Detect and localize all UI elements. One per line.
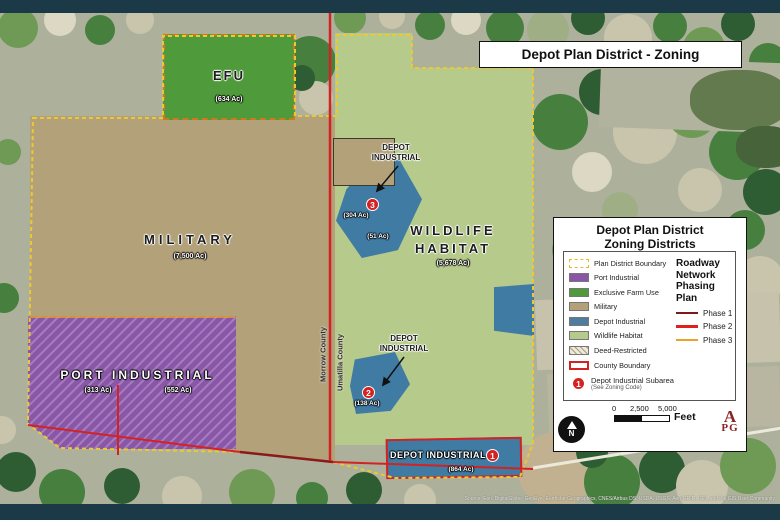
crop-circle — [678, 168, 722, 212]
callout-label-depot-industrial-2: DEPOT INDUSTRIAL — [368, 334, 440, 353]
phase2-label: Phase 2 — [703, 322, 732, 331]
plan-district-boundary-swatch — [569, 259, 589, 268]
crop-circle — [532, 94, 588, 150]
legend-item-deed-restricted: Deed-Restricted — [569, 345, 735, 357]
legend-panel: Depot Plan District Zoning Districts Pla… — [553, 217, 747, 452]
callout-label-depot-industrial-3: DEPOT INDUSTRIAL — [360, 143, 432, 162]
legend-item-phase-2: Phase 2 — [676, 322, 734, 331]
crop-circle — [415, 10, 445, 40]
wildlife-habitat-swatch — [569, 331, 589, 340]
subarea-marker-1: 1 — [486, 449, 499, 462]
scale-bar-graphic — [614, 415, 670, 422]
zone-depot-industrial-east — [494, 284, 534, 336]
zoning-map: EFU (634 Ac) MILITARY (7,500 Ac) WILDLIF… — [0, 0, 780, 520]
zone-acreage-efu: (634 Ac) — [163, 96, 295, 103]
crop-circle — [572, 152, 612, 192]
crop-circle — [0, 283, 19, 313]
legend-item-label: Wildlife Habitat — [594, 331, 643, 340]
depot-industrial-swatch — [569, 317, 589, 326]
bottom-frame-bar — [0, 504, 780, 520]
legend-title-line1: Depot Plan District — [554, 223, 746, 237]
legend-item-label: Port Industrial — [594, 273, 639, 282]
legend-item-depot-industrial-subarea: 1 Depot Industrial Subarea (See Zoning C… — [569, 376, 735, 391]
scale-tick-0: 0 — [612, 404, 616, 413]
zone-acreage-port-industrial-east: (552 Ac) — [148, 387, 208, 394]
legend-item-label: Plan District Boundary — [594, 259, 666, 268]
legend-item-phase-3: Phase 3 — [676, 336, 734, 345]
county-boundary-swatch — [569, 361, 589, 370]
legend-item-label: County Boundary — [594, 361, 650, 370]
north-arrow-icon: N — [558, 416, 585, 443]
zone-acreage-depot-industrial-2: (138 Ac) — [344, 400, 390, 407]
crop-circle — [346, 472, 382, 508]
zone-acreage-depot-industrial-3: (304 Ac) — [334, 212, 378, 219]
crop-circle — [0, 8, 38, 48]
legend-item-label: Depot Industrial — [594, 317, 645, 326]
scale-bar: 0 2,500 5,000 Feet — [606, 404, 736, 430]
zone-acreage-port-industrial-west: (313 Ac) — [68, 387, 128, 394]
crop-circle — [0, 139, 21, 165]
zone-label-efu: EFU — [163, 68, 295, 83]
legend-item-label: Exclusive Farm Use — [594, 288, 659, 297]
county-label-umatilla: Umatilla County — [336, 323, 345, 403]
zone-acreage-wildlife-habitat: (5,678 Ac) — [395, 260, 511, 267]
deed-restricted-swatch — [569, 346, 589, 355]
legend-item-label: Military — [594, 302, 617, 311]
zone-label-port-industrial: PORT INDUSTRIAL — [40, 368, 235, 382]
crop-circle — [0, 416, 16, 444]
subarea-marker-3: 3 — [366, 198, 379, 211]
phase3-line-swatch — [676, 339, 698, 342]
phase1-label: Phase 1 — [703, 309, 732, 318]
zone-acreage-depot-industrial-1: (864 Ac) — [438, 466, 484, 473]
zone-port-industrial — [28, 316, 236, 449]
apg-logo: A PG — [718, 410, 742, 434]
zone-acreage-military: (7,500 Ac) — [90, 253, 290, 260]
zone-acreage-depot-industrial-3b: (51 Ac) — [356, 233, 400, 240]
apg-logo-pg: PG — [718, 424, 742, 433]
legend-item-county-boundary: County Boundary — [569, 359, 735, 371]
top-frame-bar — [0, 0, 780, 13]
riparian-greenery — [690, 70, 780, 130]
crop-circle — [85, 15, 115, 45]
zone-label-military: MILITARY — [90, 232, 290, 247]
map-title: Depot Plan District - Zoning — [522, 47, 700, 62]
scale-bar-black-segment — [615, 416, 642, 421]
crop-circle — [743, 169, 780, 215]
north-arrow-triangle — [567, 421, 577, 429]
subarea-note-text: Depot Industrial Subarea (See Zoning Cod… — [591, 376, 674, 391]
subarea-marker-2: 2 — [362, 386, 375, 399]
scale-bar-unit: Feet — [674, 411, 696, 423]
legend-items-box: Plan District Boundary Port Industrial E… — [563, 251, 736, 401]
subarea-note-sublabel: (See Zoning Code) — [591, 385, 674, 391]
roadway-phasing-legend: Roadway Network Phasing Plan Phase 1 Pha… — [676, 258, 734, 345]
military-swatch — [569, 302, 589, 311]
map-title-box: Depot Plan District - Zoning — [479, 41, 742, 68]
subarea-marker-icon: 1 — [572, 377, 585, 390]
phase3-label: Phase 3 — [703, 336, 732, 345]
roadway-phasing-title: Roadway Network Phasing Plan — [676, 258, 734, 304]
exclusive-farm-use-swatch — [569, 288, 589, 297]
subarea-note-label: Depot Industrial Subarea — [591, 376, 674, 385]
phase1-line-swatch — [676, 312, 698, 315]
crop-circle — [104, 468, 140, 504]
north-arrow-letter: N — [569, 430, 575, 438]
scale-bar-white-segment — [642, 416, 669, 421]
legend-title: Depot Plan District Zoning Districts — [554, 223, 746, 252]
riparian-greenery — [736, 126, 780, 168]
scale-bar-ticks: 0 2,500 5,000 — [606, 404, 736, 414]
crop-circle — [653, 9, 687, 43]
crop-circle — [0, 452, 36, 492]
port-industrial-swatch — [569, 273, 589, 282]
zone-label-wildlife-habitat: WILDLIFE HABITAT — [395, 222, 511, 257]
legend-title-line2: Zoning Districts — [554, 237, 746, 251]
county-label-morrow: Morrow County — [319, 315, 328, 395]
legend-item-label: Deed-Restricted — [594, 346, 647, 355]
zone-label-depot-industrial-1: DEPOT INDUSTRIAL — [388, 450, 488, 461]
legend-item-phase-1: Phase 1 — [676, 309, 734, 318]
phase2-line-swatch — [676, 325, 698, 328]
map-credits: Source: Esri, DigitalGlobe, GeoEye, Eart… — [330, 496, 775, 502]
scale-tick-2500: 2,500 — [630, 404, 649, 413]
